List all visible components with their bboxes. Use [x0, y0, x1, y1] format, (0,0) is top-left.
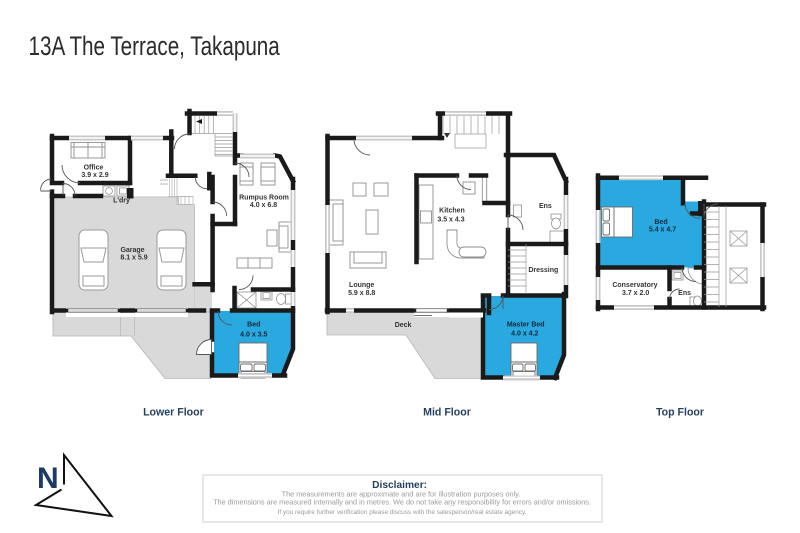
svg-text:13A The Terrace, Takapuna: 13A The Terrace, Takapuna [29, 31, 281, 61]
svg-text:Mid Floor: Mid Floor [423, 407, 471, 419]
svg-text:If you require further verific: If you require further verification plea… [278, 509, 527, 516]
svg-text:Ens: Ens [678, 290, 691, 297]
svg-text:Garage: Garage [120, 247, 144, 254]
svg-text:Bed: Bed [247, 322, 260, 329]
svg-text:Office: Office [84, 165, 104, 172]
svg-text:5.9 x 8.8: 5.9 x 8.8 [348, 290, 375, 297]
svg-text:4.0 x 6.8: 4.0 x 6.8 [250, 202, 277, 209]
svg-text:Kitchen: Kitchen [439, 208, 465, 215]
svg-text:3.9 x 2.9: 3.9 x 2.9 [81, 172, 108, 179]
svg-text:Conservatory: Conservatory [612, 282, 657, 289]
svg-text:Ens: Ens [539, 203, 552, 210]
svg-text:Master Bed: Master Bed [507, 322, 545, 329]
svg-text:5.4 x 4.7: 5.4 x 4.7 [649, 227, 676, 234]
svg-text:L'dry: L'dry [113, 198, 130, 205]
svg-text:Rumpus Room: Rumpus Room [239, 195, 289, 202]
svg-text:Deck: Deck [395, 322, 412, 329]
svg-text:N: N [37, 462, 59, 495]
svg-text:Lower Floor: Lower Floor [143, 407, 204, 419]
svg-text:Dressing: Dressing [528, 267, 558, 274]
svg-text:Bed: Bed [654, 219, 667, 226]
svg-text:Top Floor: Top Floor [656, 407, 704, 419]
svg-text:3.5 x 4.3: 3.5 x 4.3 [437, 217, 464, 224]
svg-text:3.7 x 2.0: 3.7 x 2.0 [622, 290, 649, 297]
svg-text:4.0 x 4.2: 4.0 x 4.2 [511, 331, 538, 338]
svg-text:Lounge: Lounge [349, 282, 374, 289]
svg-text:8.1 x 5.9: 8.1 x 5.9 [120, 255, 147, 262]
svg-text:4.0 x 3.5: 4.0 x 3.5 [240, 332, 267, 339]
svg-text:The dimensions are measured in: The dimensions are measured internally a… [213, 498, 591, 507]
